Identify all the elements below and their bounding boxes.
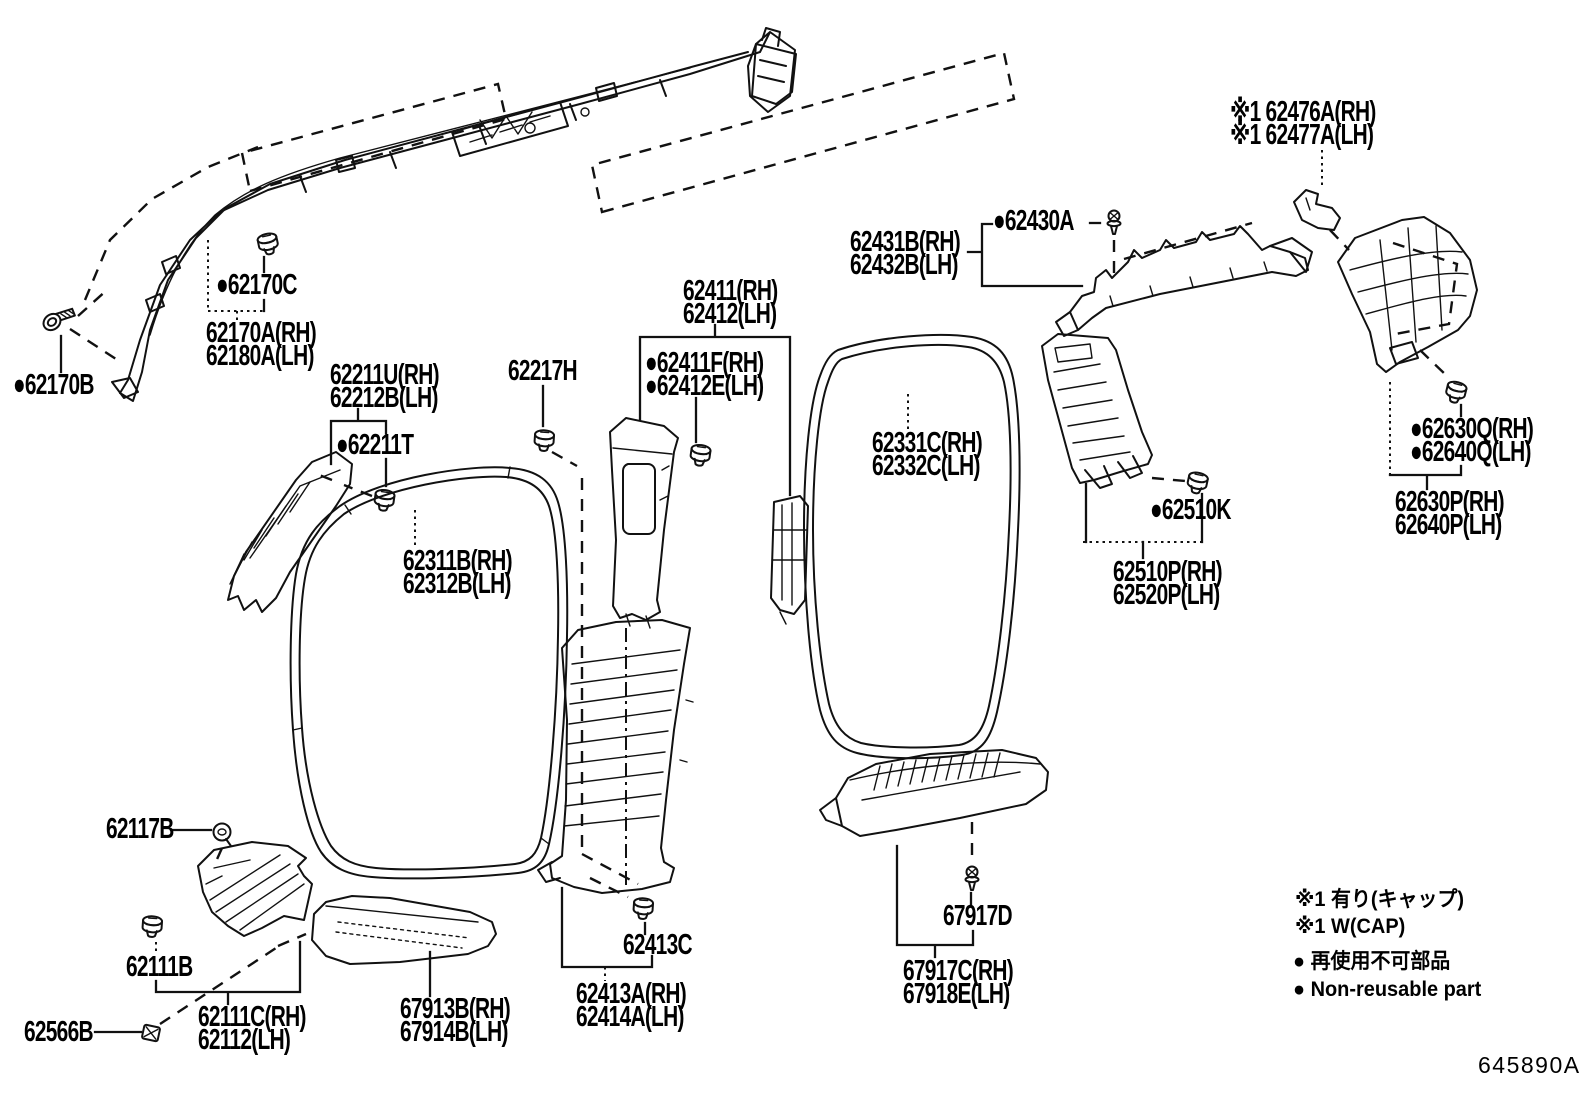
legend-cap-en: ※1 W(CAP) — [1295, 915, 1405, 939]
front-door-opening-trim-drawing — [291, 467, 568, 878]
clip-icon-62217h — [534, 430, 554, 452]
center-pillar-strip-drawing — [771, 496, 808, 624]
legend-nonreusable-jp: ● 再使用不可部品 — [1293, 950, 1450, 974]
screw-icon-62117b — [214, 824, 232, 847]
rail-dashed-envelopes — [70, 53, 1014, 359]
front-pillar-garnish-drawing — [228, 452, 352, 612]
parts-diagram-page: ●62170B ●62170C 62170A(RH)62180A(LH) 622… — [0, 0, 1592, 1099]
part-label-62111c: 62111C(RH)62112(LH) — [198, 1006, 306, 1051]
part-label-62170c: ●62170C — [216, 274, 297, 297]
clip-icon-62510k — [1186, 471, 1209, 495]
clip-icon-62413c — [633, 898, 653, 920]
quarter-trim-panel-drawing — [1338, 217, 1477, 372]
part-label-62170b: ●62170B — [13, 374, 94, 397]
part-label-62117b: 62117B — [106, 818, 174, 841]
clip-icon-62211t — [373, 489, 395, 512]
part-label-62411f: ●62411F(RH)●62412E(LH) — [645, 352, 763, 397]
part-label-62411: 62411(RH)62412(LH) — [683, 280, 778, 325]
part-label-62566b: 62566B — [24, 1021, 93, 1044]
rear-scuff-plate-drawing — [820, 750, 1048, 836]
part-label-62431b: 62431B(RH)62432B(LH) — [850, 231, 960, 276]
part-label-62311b: 62311B(RH)62312B(LH) — [403, 550, 512, 595]
part-label-62211u: 62211U(RH)62212B(LH) — [330, 364, 439, 409]
clip-icon-62170c — [257, 232, 280, 256]
pin-icon-62430a — [1108, 211, 1121, 235]
center-pillar-upper-garnish-drawing — [610, 418, 678, 628]
cowl-side-trim-drawing — [198, 842, 312, 936]
clip-icon-62566b — [142, 1024, 161, 1041]
rear-door-opening-trim-drawing — [804, 335, 1020, 758]
part-label-62476a: ※1 62476A(RH)※1 62477A(LH) — [1230, 101, 1376, 146]
clip-icon-62630q — [1444, 380, 1467, 405]
part-label-62413c: 62413C — [623, 934, 692, 957]
front-scuff-plate-drawing — [312, 896, 496, 964]
part-label-62331c: 62331C(RH)62332C(LH) — [872, 432, 982, 477]
part-label-62111b: 62111B — [126, 956, 193, 979]
part-label-62630q: ●62630Q(RH)●62640Q(LH) — [1410, 418, 1533, 463]
part-label-62630p: 62630P(RH)62640P(LH) — [1395, 491, 1504, 536]
clip-icon-62111b — [142, 916, 162, 938]
legend-cap-jp: ※1 有り(キャップ) — [1295, 888, 1464, 912]
part-label-67913b: 67913B(RH)67914B(LH) — [400, 998, 510, 1043]
part-label-62413a: 62413A(RH)62414A(LH) — [576, 983, 686, 1028]
part-label-62430a: ●62430A — [993, 210, 1074, 233]
clip-icon-62411f — [689, 444, 711, 467]
part-label-62170a: 62170A(RH)62180A(LH) — [206, 322, 316, 367]
roof-headlining-rear-garnish-drawing — [1056, 226, 1312, 336]
figure-number: 645890A — [1478, 1052, 1581, 1079]
part-label-62217h: 62217H — [508, 360, 577, 383]
part-label-62211t: ●62211T — [336, 434, 413, 457]
part-label-67917c: 67917C(RH)67918E(LH) — [903, 960, 1013, 1005]
quarter-pillar-garnish-drawing — [1042, 334, 1152, 488]
legend-nonreusable-en: ● Non-reusable part — [1293, 978, 1481, 1002]
pillar-garnish-cap-drawing — [1294, 190, 1340, 230]
dashed-assembly-lines — [160, 223, 1448, 1024]
pin-icon-67917d — [966, 867, 979, 891]
part-label-62510p: 62510P(RH)62520P(LH) — [1113, 561, 1222, 606]
part-label-67917d: 67917D — [943, 905, 1012, 928]
part-label-62510k: ●62510K — [1150, 499, 1231, 522]
